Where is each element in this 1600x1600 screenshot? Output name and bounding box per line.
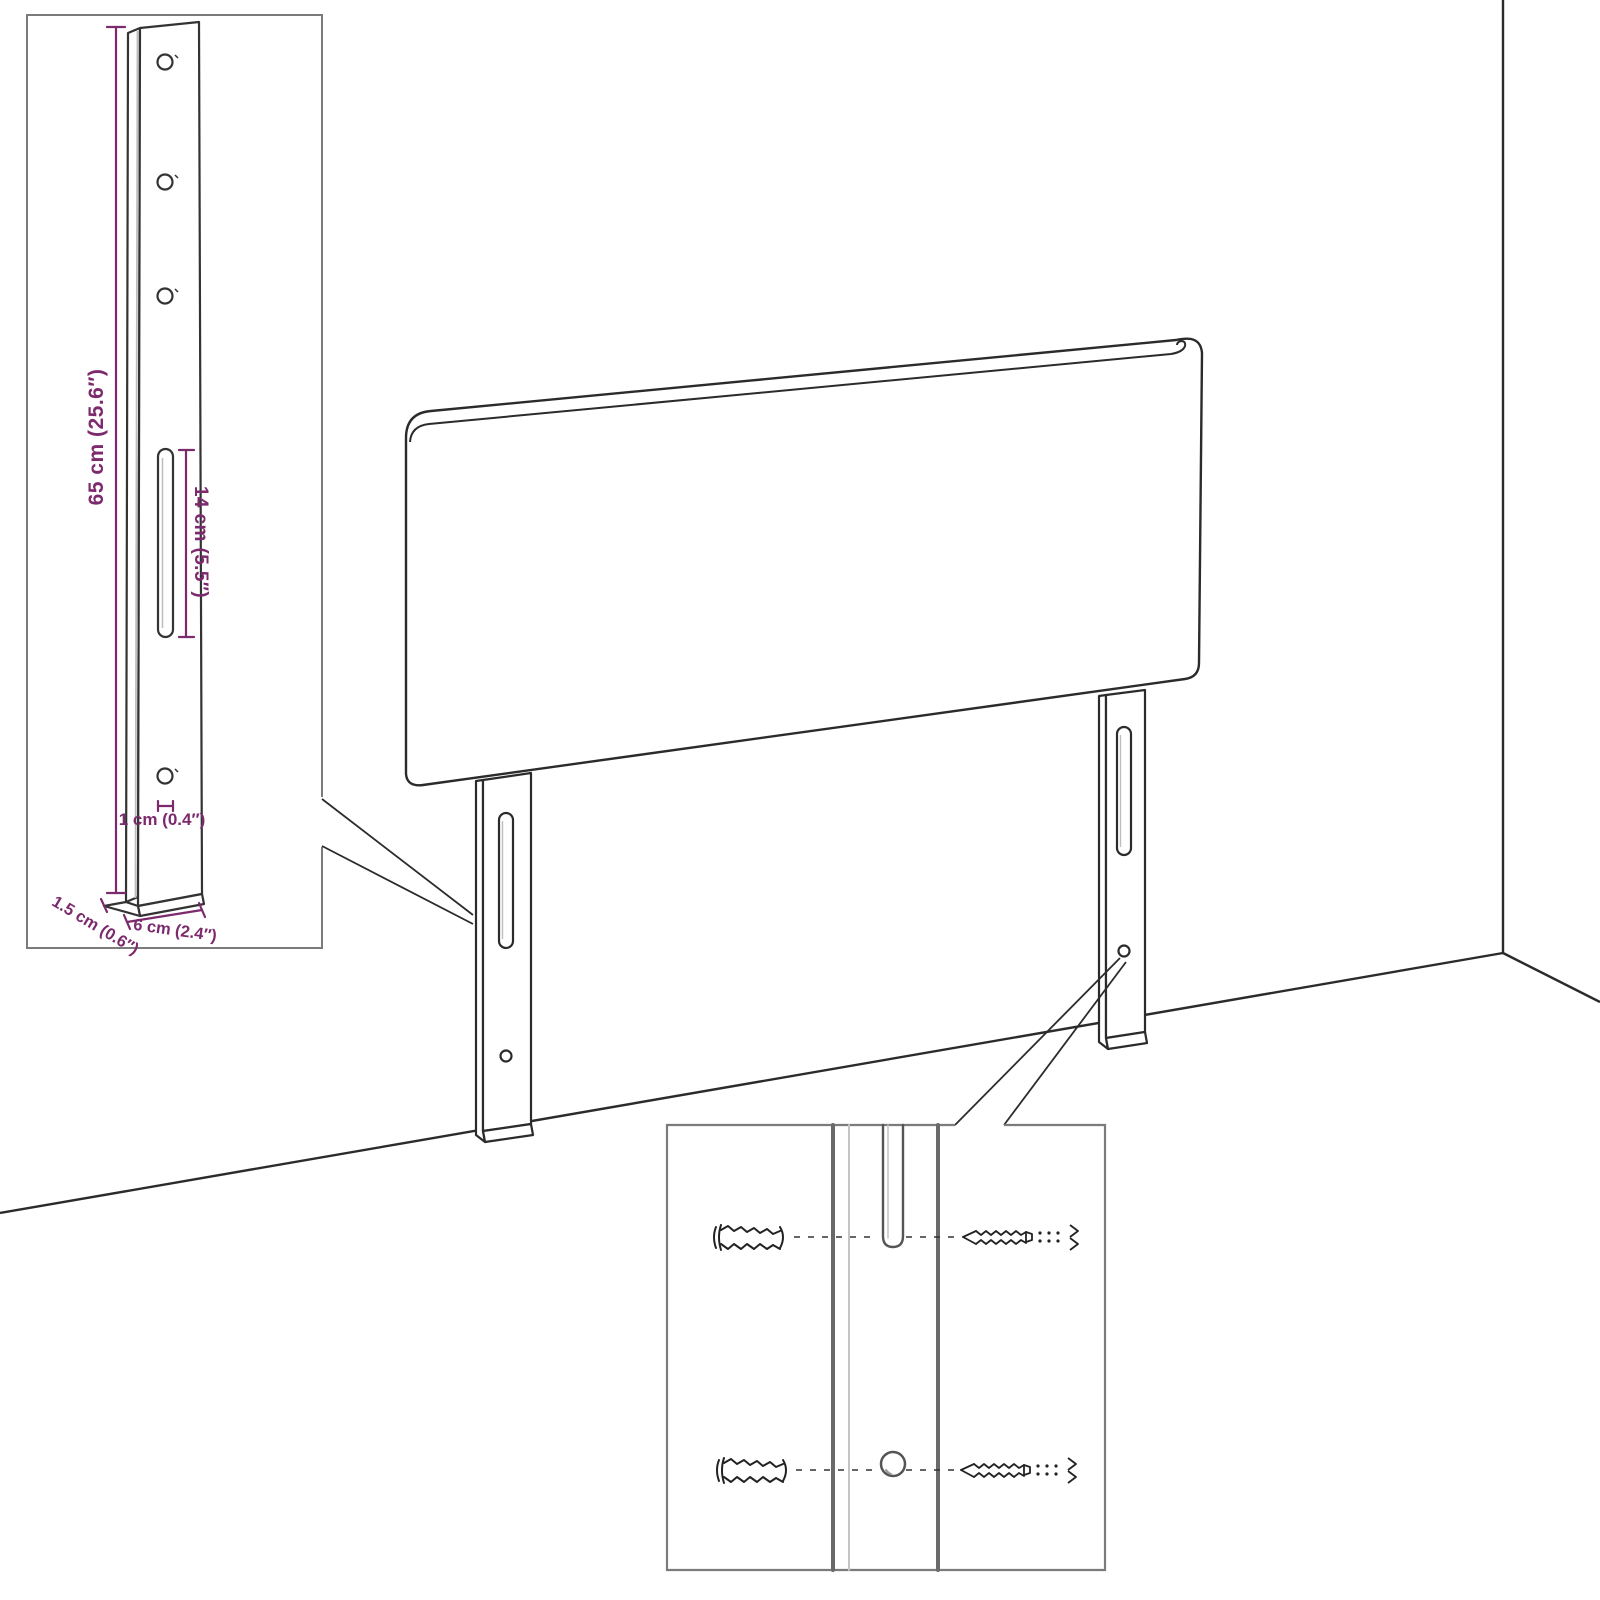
magnified-leg <box>833 1125 938 1570</box>
leg-bottom-tip <box>104 902 140 916</box>
magnified-hole <box>881 1452 905 1476</box>
adjustment-slot <box>158 449 173 637</box>
mounting-hole <box>158 55 173 70</box>
diagram-canvas <box>0 0 1600 1600</box>
slot-length-label: 14 cm (5.5″) <box>189 486 211 598</box>
inset-leg-drawing <box>104 22 204 916</box>
pointer-dashed-lines <box>794 1237 956 1470</box>
screw-icon <box>961 1231 1032 1477</box>
headboard-leg-right <box>1099 690 1147 1049</box>
hole-diameter-label: 1 cm (0.4″) <box>119 810 206 830</box>
callout-lines-leg-detail <box>322 799 473 924</box>
hardware-detail-inset <box>667 1125 1105 1570</box>
mounting-hole <box>158 175 173 190</box>
inset-border <box>667 1125 1105 1570</box>
panel-outline <box>406 339 1202 786</box>
mounting-hole <box>158 769 173 784</box>
arrow-chevrons-icon <box>1068 1225 1078 1483</box>
magnified-slot <box>883 1125 903 1247</box>
mounting-hole <box>158 289 173 304</box>
pointer-dots <box>1036 1231 1059 1475</box>
leg-screw-hole <box>1119 946 1130 957</box>
leg-dimension-inset <box>27 15 322 948</box>
leg-screw-hole <box>501 1051 512 1062</box>
leg-height-label: 65 cm (25.6″) <box>85 369 109 506</box>
floor-line-left <box>0 953 1503 1213</box>
leg-slot <box>499 813 513 948</box>
leg-slot <box>1117 727 1131 855</box>
product-dimension-diagram: 65 cm (25.6″) 14 cm (5.5″) 1 cm (0.4″) 1… <box>0 0 1600 1600</box>
floor-line-right <box>1503 953 1600 1002</box>
headboard-leg-left <box>476 773 533 1142</box>
headboard-panel <box>406 339 1202 786</box>
wall-anchor-icon <box>714 1225 786 1483</box>
